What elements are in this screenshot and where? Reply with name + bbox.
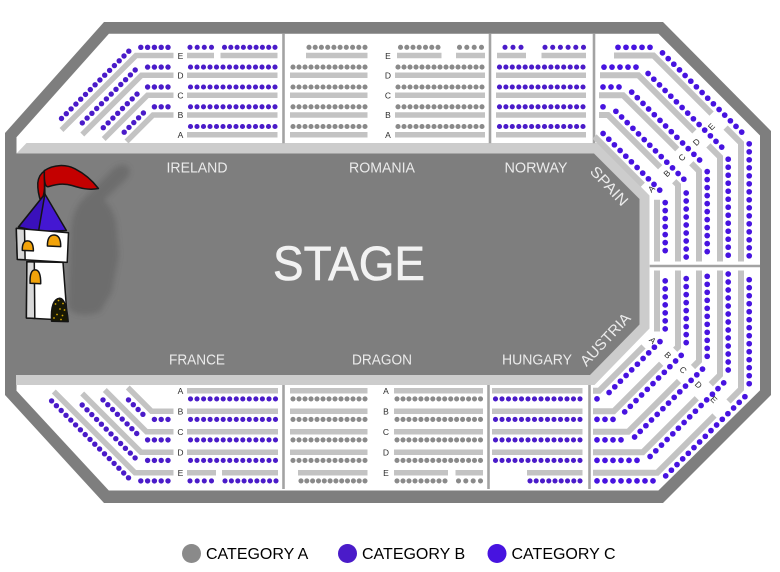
svg-text:FRANCE: FRANCE (169, 352, 225, 369)
svg-text:CATEGORY C: CATEGORY C (512, 546, 616, 563)
svg-text:B: B (383, 406, 389, 416)
svg-text:D: D (177, 447, 183, 457)
svg-text:B: B (178, 406, 184, 416)
svg-text:STAGE: STAGE (273, 238, 425, 291)
svg-text:A: A (178, 386, 184, 396)
svg-text:NORWAY: NORWAY (505, 160, 568, 177)
svg-text:B: B (178, 110, 184, 120)
svg-text:HUNGARY: HUNGARY (502, 352, 572, 369)
svg-text:IRELAND: IRELAND (167, 160, 228, 177)
svg-text:E: E (383, 468, 389, 478)
svg-text:D: D (383, 447, 389, 457)
svg-text:CATEGORY A: CATEGORY A (206, 546, 309, 563)
svg-text:CATEGORY B: CATEGORY B (362, 546, 465, 563)
svg-text:E: E (178, 51, 184, 61)
svg-text:D: D (177, 71, 183, 81)
svg-text:DRAGON: DRAGON (352, 352, 412, 369)
svg-text:A: A (383, 386, 389, 396)
svg-text:C: C (385, 90, 391, 100)
svg-text:ROMANIA: ROMANIA (349, 160, 415, 177)
svg-text:A: A (385, 130, 391, 140)
svg-text:B: B (385, 110, 391, 120)
svg-text:C: C (177, 427, 183, 437)
svg-text:D: D (385, 71, 391, 81)
svg-text:A: A (178, 130, 184, 140)
svg-text:C: C (383, 427, 389, 437)
svg-text:E: E (385, 51, 391, 61)
svg-text:E: E (178, 468, 184, 478)
svg-text:C: C (177, 90, 183, 100)
